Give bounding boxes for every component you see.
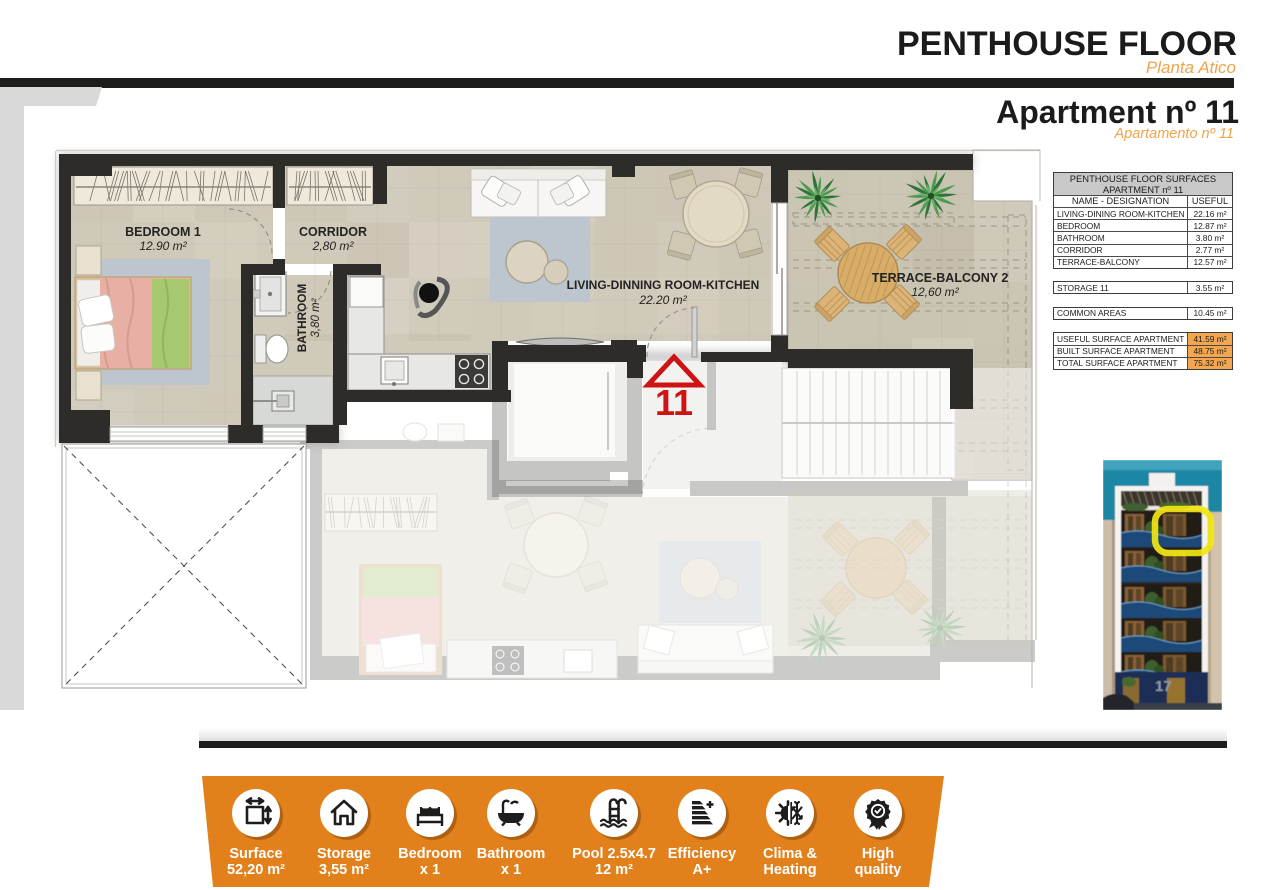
svg-text:A+: A+ — [693, 862, 712, 878]
svg-text:3,55 m²: 3,55 m² — [319, 862, 369, 878]
svg-text:Heating: Heating — [763, 862, 816, 878]
svg-text:quality: quality — [855, 862, 902, 878]
svg-text:x 1: x 1 — [501, 862, 521, 878]
svg-text:Surface: Surface — [229, 846, 282, 862]
svg-text:12 m²: 12 m² — [595, 862, 633, 878]
svg-text:High: High — [862, 846, 894, 862]
svg-text:Storage: Storage — [317, 846, 371, 862]
svg-text:Bathroom: Bathroom — [477, 846, 545, 862]
svg-text:Pool 2.5x4.7: Pool 2.5x4.7 — [572, 846, 656, 862]
svg-text:52,20 m²: 52,20 m² — [227, 862, 285, 878]
svg-text:Clima &: Clima & — [763, 846, 818, 862]
svg-text:Efficiency: Efficiency — [668, 846, 737, 862]
svg-text:Bedroom: Bedroom — [398, 846, 462, 862]
svg-text:x 1: x 1 — [420, 862, 440, 878]
